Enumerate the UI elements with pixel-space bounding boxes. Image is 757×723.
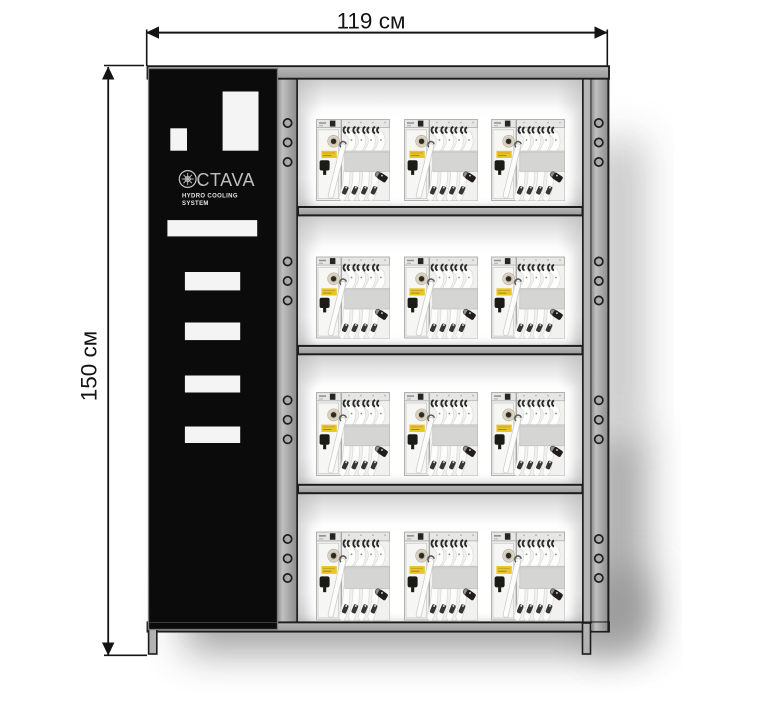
svg-text:HYDRO COOLING: HYDRO COOLING [182, 193, 238, 199]
svg-text:CTAVA: CTAVA [197, 170, 256, 190]
svg-text:SYSTEM: SYSTEM [182, 201, 209, 207]
svg-text:150 см: 150 см [77, 331, 102, 402]
svg-text:119 см: 119 см [337, 9, 406, 34]
